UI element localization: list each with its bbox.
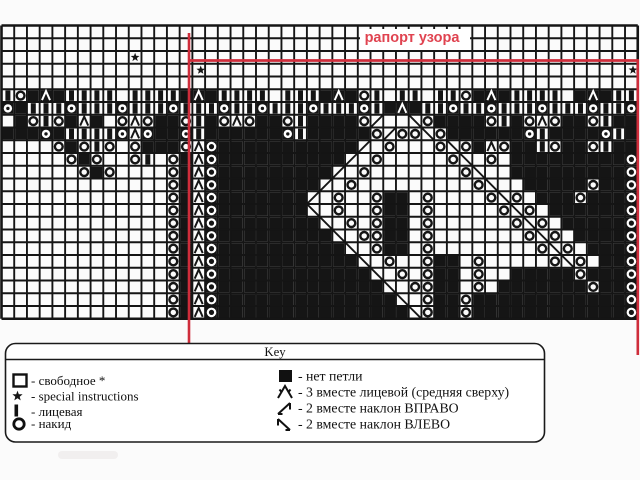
svg-text:- 2 вместе наклон ВЛЕВО: - 2 вместе наклон ВЛЕВО: [298, 417, 450, 432]
svg-text:- свободное *: - свободное *: [31, 373, 105, 388]
svg-text:- 3 вместе лицевой (средняя: - 3 вместе лицевой (средняя сверху): [298, 385, 509, 401]
svg-text:Key: Key: [264, 345, 286, 359]
svg-text:- special instructions: - special instructions: [31, 389, 139, 404]
svg-text:рапорт узора: рапорт узора: [365, 30, 461, 46]
svg-text:- нет петли: - нет петли: [298, 369, 363, 384]
svg-text:- 2 вместе наклон ВПРАВО: - 2 вместе наклон ВПРАВО: [298, 401, 459, 416]
svg-text:- накид: - накид: [31, 416, 72, 431]
